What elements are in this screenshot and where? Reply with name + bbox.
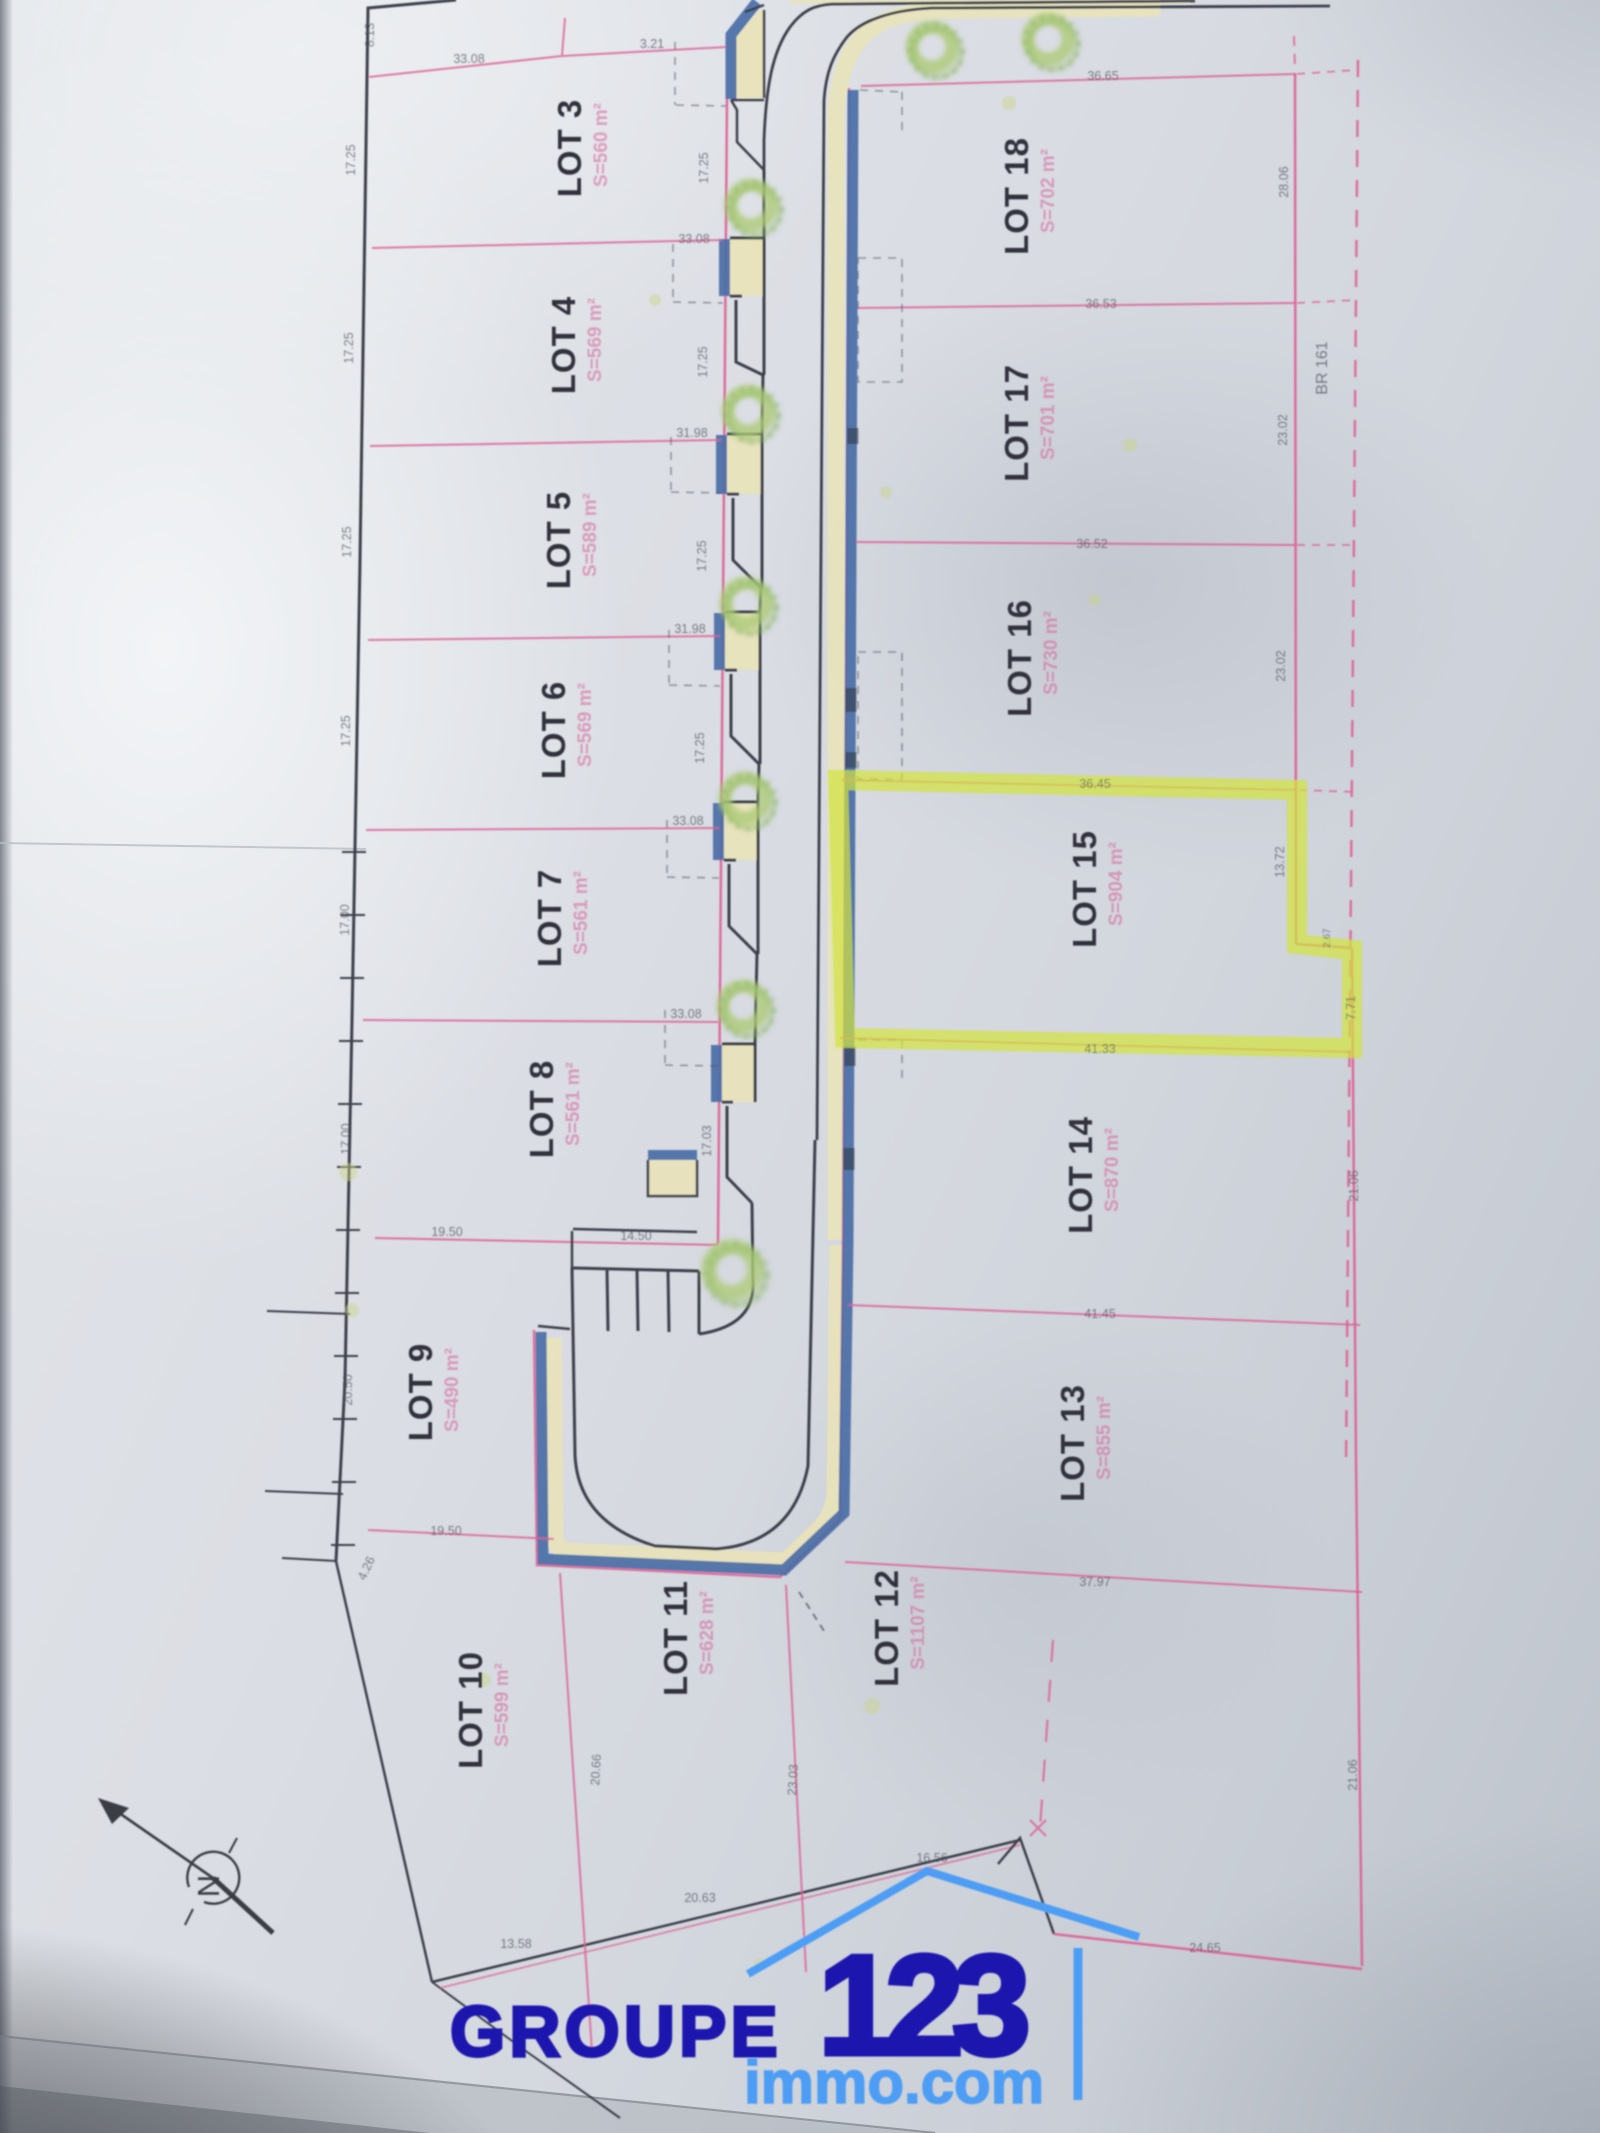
svg-text:24.65: 24.65 (1189, 1941, 1220, 1955)
svg-text:S=855 m²: S=855 m² (1094, 1396, 1115, 1480)
svg-text:LOT 16: LOT 16 (1001, 599, 1038, 717)
svg-text:N: N (191, 1875, 226, 1897)
svg-text:13.58: 13.58 (500, 1937, 531, 1951)
svg-text:17.25: 17.25 (696, 346, 710, 377)
svg-text:13.72: 13.72 (1273, 846, 1287, 877)
svg-text:GROUPE: GROUPE (450, 1993, 782, 2072)
svg-text:33.08: 33.08 (672, 814, 703, 828)
svg-text:17.25: 17.25 (344, 144, 358, 175)
svg-text:17.00: 17.00 (338, 904, 352, 935)
svg-text:21.06: 21.06 (1347, 1170, 1361, 1201)
svg-text:8.13: 8.13 (363, 23, 377, 47)
svg-text:S=561 m²: S=561 m² (563, 1062, 584, 1146)
svg-text:LOT 17: LOT 17 (998, 364, 1035, 482)
svg-text:17.25: 17.25 (342, 332, 356, 363)
svg-text:23.02: 23.02 (1276, 414, 1290, 445)
svg-text:LOT 10: LOT 10 (452, 1651, 489, 1769)
svg-text:S=701 m²: S=701 m² (1038, 376, 1059, 460)
svg-text:17.25: 17.25 (693, 732, 707, 763)
svg-text:36.52: 36.52 (1076, 537, 1107, 551)
svg-text:LOT 13: LOT 13 (1054, 1384, 1091, 1502)
svg-text:S=569 m²: S=569 m² (575, 683, 596, 767)
svg-text:LOT 9: LOT 9 (402, 1343, 439, 1442)
svg-text:S=561 m²: S=561 m² (571, 871, 592, 955)
svg-text:S=730 m²: S=730 m² (1041, 611, 1062, 695)
svg-text:37.97: 37.97 (1079, 1575, 1110, 1589)
svg-text:41.45: 41.45 (1084, 1307, 1115, 1321)
svg-text:20.63: 20.63 (684, 1891, 715, 1905)
svg-text:23.02: 23.02 (1274, 650, 1288, 681)
svg-text:LOT 12: LOT 12 (868, 1569, 905, 1687)
svg-text:7.71: 7.71 (1344, 996, 1358, 1020)
svg-text:36.65: 36.65 (1087, 69, 1118, 83)
svg-text:21.06: 21.06 (1346, 1759, 1360, 1790)
svg-text:23.03: 23.03 (785, 1764, 801, 1796)
svg-text:28.06: 28.06 (1277, 166, 1291, 197)
svg-text:S=1107 m²: S=1107 m² (908, 1576, 929, 1670)
svg-text:33.08: 33.08 (678, 232, 709, 246)
svg-text:LOT 8: LOT 8 (523, 1060, 560, 1159)
svg-text:17.25: 17.25 (339, 715, 353, 746)
svg-text:17.25: 17.25 (697, 152, 711, 183)
svg-text:14.50: 14.50 (620, 1229, 651, 1243)
svg-text:17.25: 17.25 (340, 526, 354, 557)
svg-text:BR 161: BR 161 (1314, 341, 1331, 394)
svg-text:36.45: 36.45 (1079, 777, 1110, 791)
svg-text:17.25: 17.25 (695, 540, 709, 571)
svg-text:20.66: 20.66 (588, 1754, 604, 1786)
svg-text:41.33: 41.33 (1084, 1042, 1115, 1056)
svg-text:LOT 3: LOT 3 (551, 99, 588, 198)
svg-text:S=702 m²: S=702 m² (1038, 149, 1059, 233)
svg-text:17.00: 17.00 (339, 1123, 353, 1154)
svg-text:19.50: 19.50 (431, 1225, 462, 1239)
svg-text:S=560 m²: S=560 m² (591, 103, 612, 187)
svg-text:20.50: 20.50 (341, 1374, 355, 1405)
svg-text:17.03: 17.03 (700, 1125, 714, 1156)
svg-text:3.21: 3.21 (640, 37, 664, 51)
svg-text:16.56: 16.56 (916, 1851, 947, 1865)
svg-text:S=589 m²: S=589 m² (580, 493, 601, 577)
svg-text:S=490 m²: S=490 m² (442, 1348, 463, 1432)
svg-text:2.67: 2.67 (1322, 928, 1333, 948)
svg-text:LOT 18: LOT 18 (998, 137, 1035, 255)
svg-text:LOT 5: LOT 5 (540, 491, 577, 590)
svg-text:LOT 15: LOT 15 (1066, 830, 1103, 948)
svg-text:S=870 m²: S=870 m² (1102, 1128, 1123, 1212)
svg-text:LOT 11: LOT 11 (657, 1580, 694, 1696)
svg-text:33.08: 33.08 (453, 52, 484, 66)
svg-text:LOT 4: LOT 4 (545, 296, 582, 395)
svg-text:31.98: 31.98 (674, 622, 705, 636)
svg-text:19.50: 19.50 (430, 1524, 461, 1538)
svg-text:LOT 6: LOT 6 (535, 681, 572, 780)
svg-text:36.53: 36.53 (1085, 297, 1116, 311)
svg-text:S=599 m²: S=599 m² (492, 1663, 513, 1747)
svg-text:31.98: 31.98 (676, 426, 707, 440)
svg-text:S=904 m²: S=904 m² (1106, 842, 1127, 926)
svg-text:4.26: 4.26 (355, 1554, 378, 1582)
svg-text:LOT 7: LOT 7 (531, 869, 568, 968)
svg-text:immo.com: immo.com (744, 2049, 1044, 2116)
svg-text:S=569 m²: S=569 m² (585, 298, 606, 382)
svg-text:S=628 m²: S=628 m² (697, 1591, 718, 1675)
svg-text:33.08: 33.08 (670, 1007, 701, 1021)
svg-text:LOT 14: LOT 14 (1062, 1116, 1099, 1234)
